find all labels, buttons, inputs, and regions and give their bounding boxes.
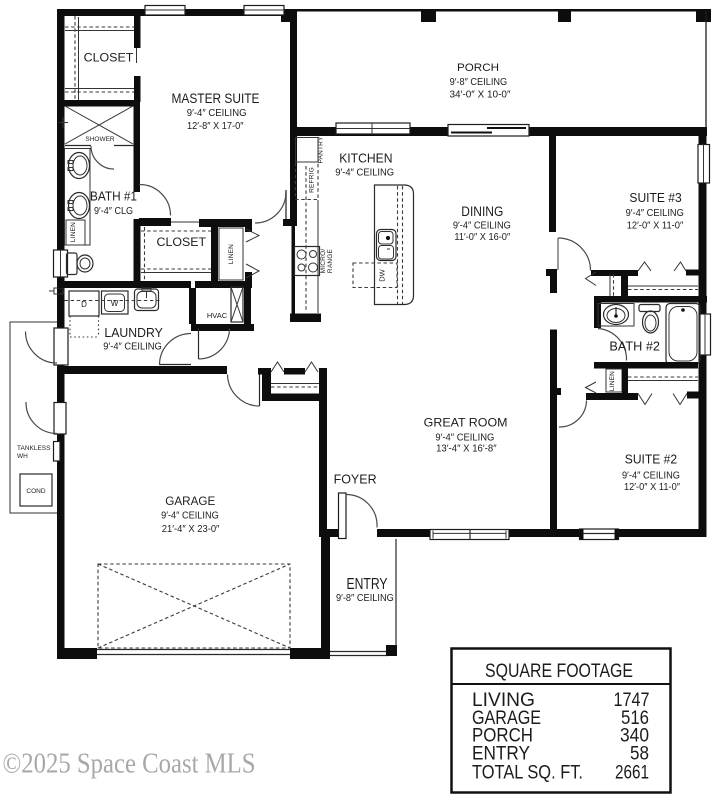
svg-text:GARAGE: GARAGE [165, 496, 215, 508]
svg-text:DW: DW [378, 268, 387, 281]
svg-text:SUITE #3: SUITE #3 [629, 190, 681, 205]
svg-text:TOTAL SQ. FT.: TOTAL SQ. FT. [472, 762, 583, 784]
svg-text:MICRO/: MICRO/ [320, 249, 327, 274]
svg-text:HVAC: HVAC [207, 311, 228, 320]
svg-text:PORCH: PORCH [457, 62, 499, 74]
svg-text:9′-4″ CLG: 9′-4″ CLG [94, 205, 133, 217]
svg-text:SUITE #2: SUITE #2 [625, 452, 677, 467]
svg-text:D: D [81, 300, 87, 309]
svg-text:34′-0″ X 10-0″: 34′-0″ X 10-0″ [450, 88, 511, 100]
svg-text:9′-8″ CEILING: 9′-8″ CEILING [336, 592, 394, 604]
svg-text:2661: 2661 [615, 762, 649, 784]
svg-text:12′-0″ X 11-0″: 12′-0″ X 11-0″ [624, 481, 680, 493]
svg-text:LINEN: LINEN [609, 371, 616, 391]
svg-text:ENTRY: ENTRY [347, 576, 388, 593]
svg-text:KITCHEN: KITCHEN [339, 152, 392, 166]
svg-text:LINEN: LINEN [70, 222, 77, 242]
svg-text:9′-4″ CEILING: 9′-4″ CEILING [622, 470, 680, 482]
svg-text:9′-8″ CEILING: 9′-8″ CEILING [450, 76, 508, 88]
svg-text:9′-4″ CEILING: 9′-4″ CEILING [626, 207, 684, 219]
svg-text:9′-4″ CEILING: 9′-4″ CEILING [161, 510, 219, 522]
svg-text:WH: WH [17, 453, 28, 460]
svg-text:©2025 Space Coast MLS: ©2025 Space Coast MLS [3, 749, 256, 780]
svg-text:MASTER SUITE: MASTER SUITE [172, 90, 260, 106]
svg-text:9′-4″ CEILING: 9′-4″ CEILING [335, 166, 394, 178]
svg-text:12′-0″ X 11-0″: 12′-0″ X 11-0″ [627, 220, 684, 232]
svg-text:9′-4″ CEILING: 9′-4″ CEILING [453, 220, 511, 232]
svg-text:COND: COND [26, 488, 45, 495]
svg-text:RANGE: RANGE [327, 248, 334, 273]
svg-text:21′-4″ X 23-0″: 21′-4″ X 23-0″ [162, 523, 220, 535]
svg-text:LAUNDRY: LAUNDRY [104, 325, 163, 340]
svg-text:FOYER: FOYER [334, 472, 377, 487]
svg-text:BATH #2: BATH #2 [609, 339, 660, 354]
svg-text:REFRIG: REFRIG [309, 167, 316, 193]
svg-text:CLOSET: CLOSET [157, 235, 207, 249]
svg-text:9′-4″ CEILING: 9′-4″ CEILING [187, 107, 247, 119]
svg-text:12′-8″ X 17-0″: 12′-8″ X 17-0″ [187, 120, 244, 132]
svg-text:BATH #1: BATH #1 [90, 189, 137, 204]
svg-text:13′-4″ X 16′-8″: 13′-4″ X 16′-8″ [436, 443, 497, 455]
svg-text:PANTRY: PANTRY [318, 136, 325, 163]
svg-text:TANKLESS: TANKLESS [17, 445, 51, 452]
svg-text:DINING: DINING [461, 204, 503, 219]
svg-text:LINEN: LINEN [228, 244, 235, 264]
svg-text:CLOSET: CLOSET [84, 51, 134, 65]
svg-text:SHOWER: SHOWER [85, 136, 115, 143]
svg-text:11′-0″ X 16-0″: 11′-0″ X 16-0″ [454, 231, 510, 243]
svg-text:GREAT ROOM: GREAT ROOM [424, 416, 508, 430]
svg-text:SQUARE FOOTAGE: SQUARE FOOTAGE [485, 660, 633, 682]
svg-text:9′-4″ CEILING: 9′-4″ CEILING [103, 340, 161, 352]
